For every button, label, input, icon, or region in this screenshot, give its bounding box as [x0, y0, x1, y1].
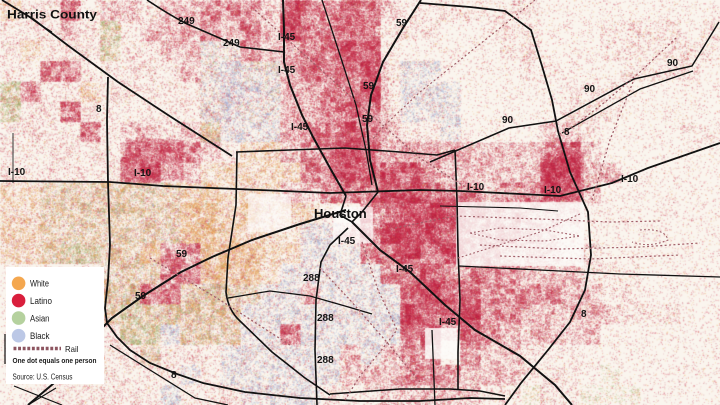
svg-text:288: 288 — [317, 355, 334, 366]
svg-text:288: 288 — [317, 313, 334, 324]
svg-text:I-10: I-10 — [467, 182, 485, 193]
svg-text:Black: Black — [30, 331, 50, 341]
svg-text:59: 59 — [176, 249, 188, 260]
svg-text:I-45: I-45 — [396, 264, 414, 275]
svg-text:Houston: Houston — [314, 206, 367, 221]
svg-text:Asian: Asian — [30, 313, 50, 323]
svg-text:I-45: I-45 — [278, 32, 296, 43]
svg-text:90: 90 — [667, 58, 679, 69]
svg-text:I-10: I-10 — [8, 167, 26, 178]
svg-text:One dot equals one person: One dot equals one person — [13, 356, 97, 365]
svg-text:8: 8 — [171, 370, 177, 381]
svg-text:I-10: I-10 — [134, 168, 152, 179]
svg-text:8: 8 — [564, 127, 570, 138]
svg-text:59: 59 — [362, 114, 374, 125]
svg-text:90: 90 — [584, 84, 596, 95]
svg-text:Rail: Rail — [65, 345, 79, 354]
svg-text:I-10: I-10 — [621, 174, 639, 185]
svg-text:I-45: I-45 — [278, 65, 296, 76]
svg-text:Harris County: Harris County — [7, 8, 97, 22]
svg-text:249: 249 — [223, 38, 240, 49]
svg-text:90: 90 — [502, 115, 514, 126]
svg-text:59: 59 — [363, 81, 375, 92]
svg-text:8: 8 — [581, 309, 587, 320]
svg-text:288: 288 — [303, 273, 320, 284]
svg-text:Source: U.S. Census: Source: U.S. Census — [13, 373, 73, 382]
svg-text:I-45: I-45 — [439, 317, 457, 328]
svg-text:I-10: I-10 — [544, 185, 562, 196]
svg-text:249: 249 — [178, 16, 195, 27]
svg-text:8: 8 — [96, 104, 102, 115]
svg-text:I-45: I-45 — [338, 236, 356, 247]
svg-text:White: White — [30, 279, 49, 289]
svg-text:59: 59 — [396, 18, 408, 29]
svg-text:59: 59 — [135, 291, 147, 302]
svg-text:I-45: I-45 — [291, 122, 309, 133]
svg-text:Latino: Latino — [30, 296, 52, 306]
